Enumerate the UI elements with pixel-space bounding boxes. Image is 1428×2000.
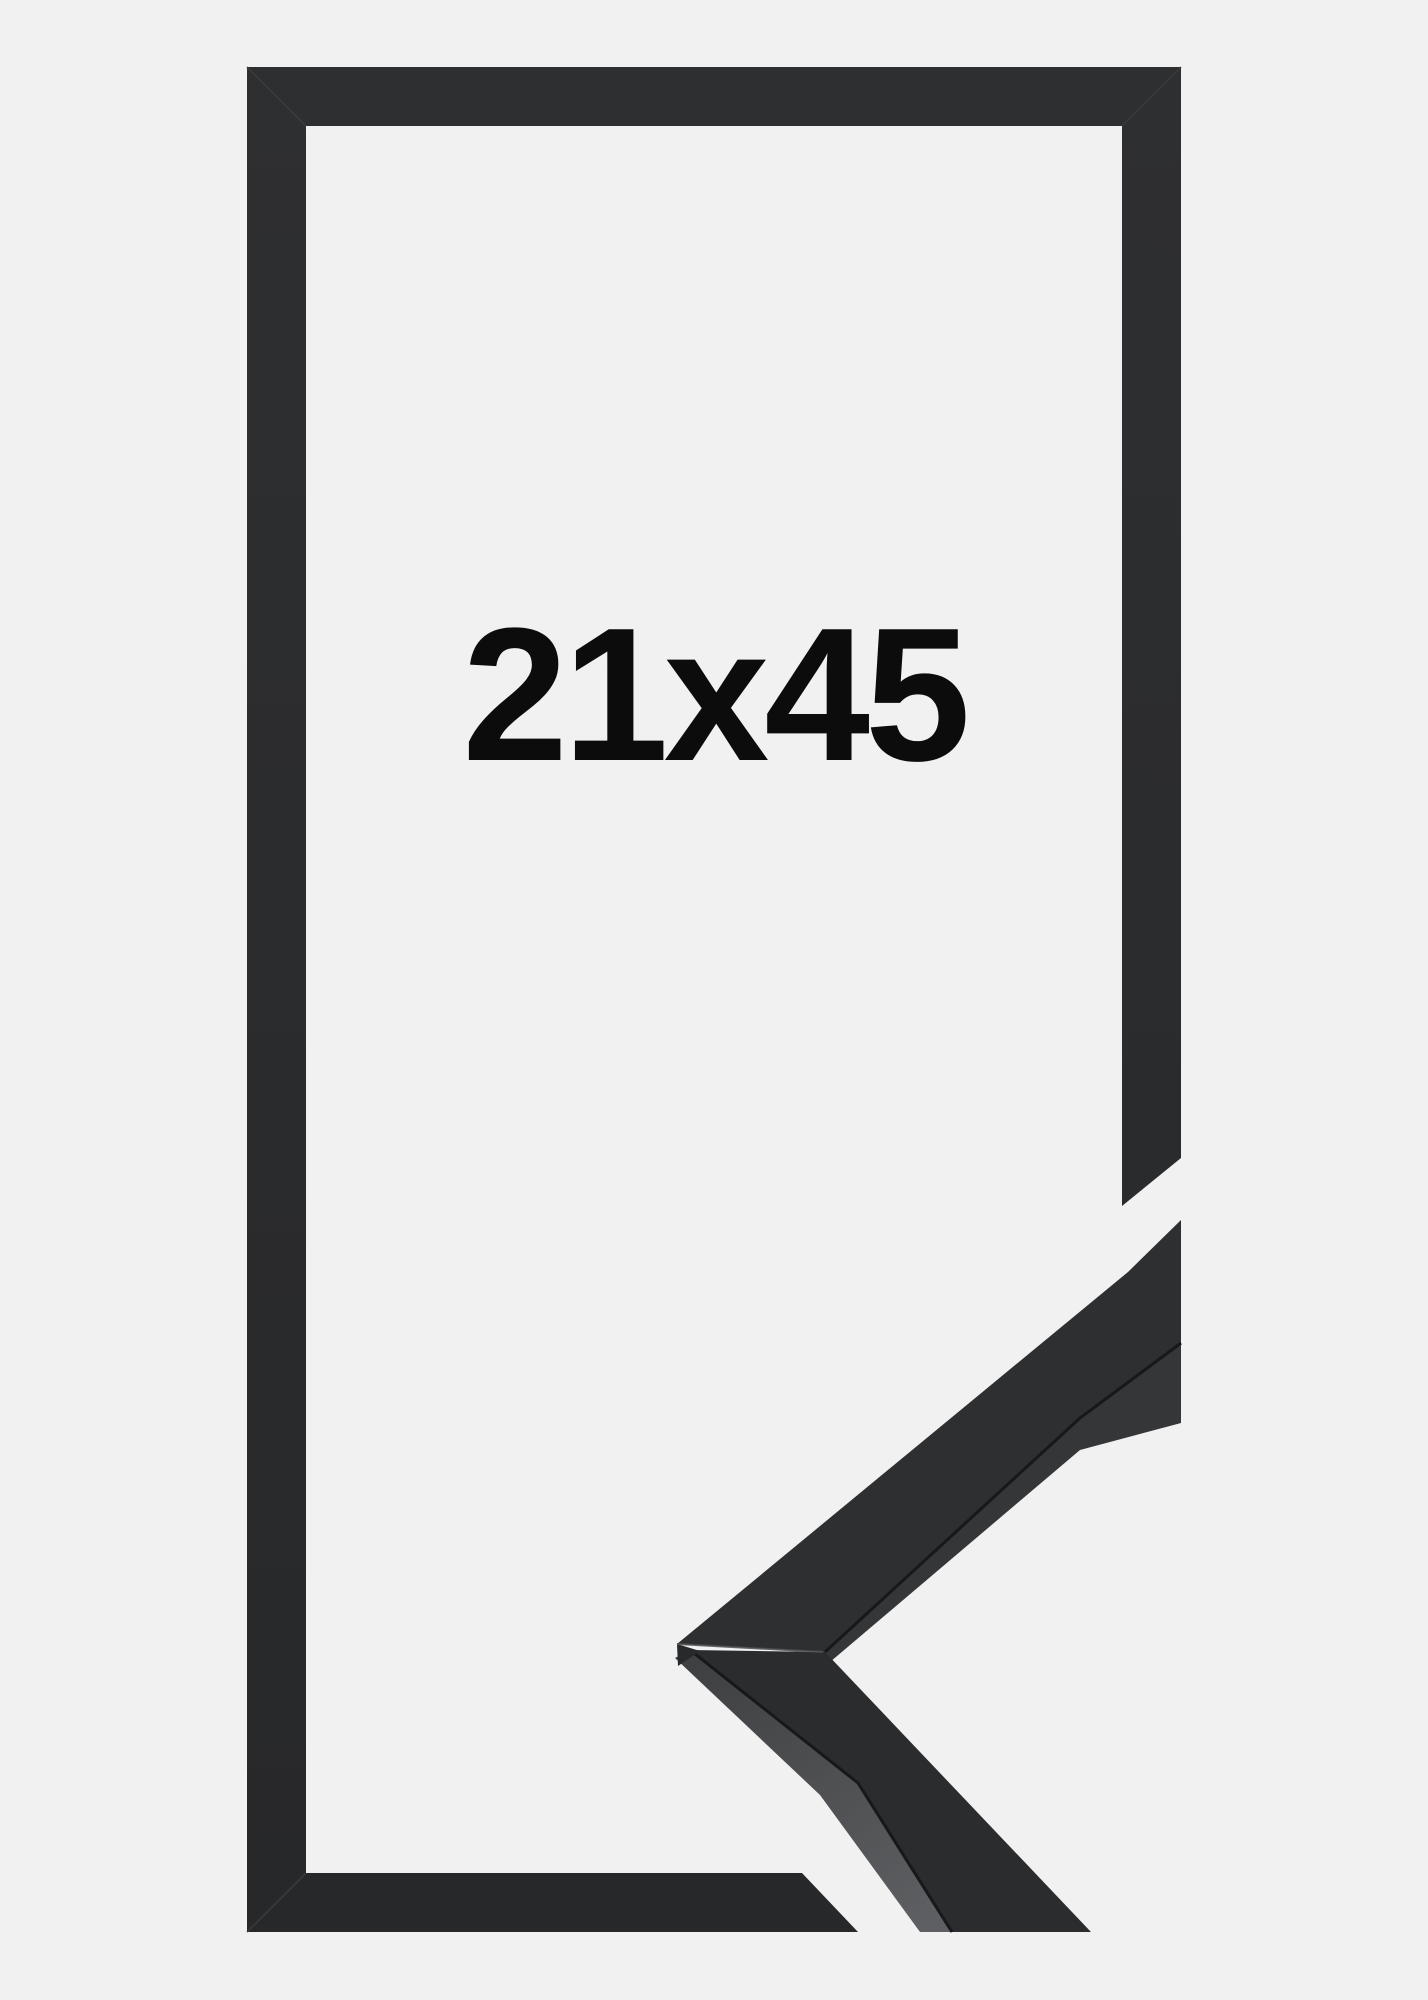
frame-illustration (0, 0, 1428, 2000)
frame-left-bar (247, 67, 306, 1932)
background (0, 0, 1428, 2000)
frame-top-bar (247, 67, 1181, 126)
frame-bottom-bar (247, 1873, 858, 1932)
product-image: 21x45 (0, 0, 1428, 2000)
size-label: 21x45 (0, 600, 1428, 790)
